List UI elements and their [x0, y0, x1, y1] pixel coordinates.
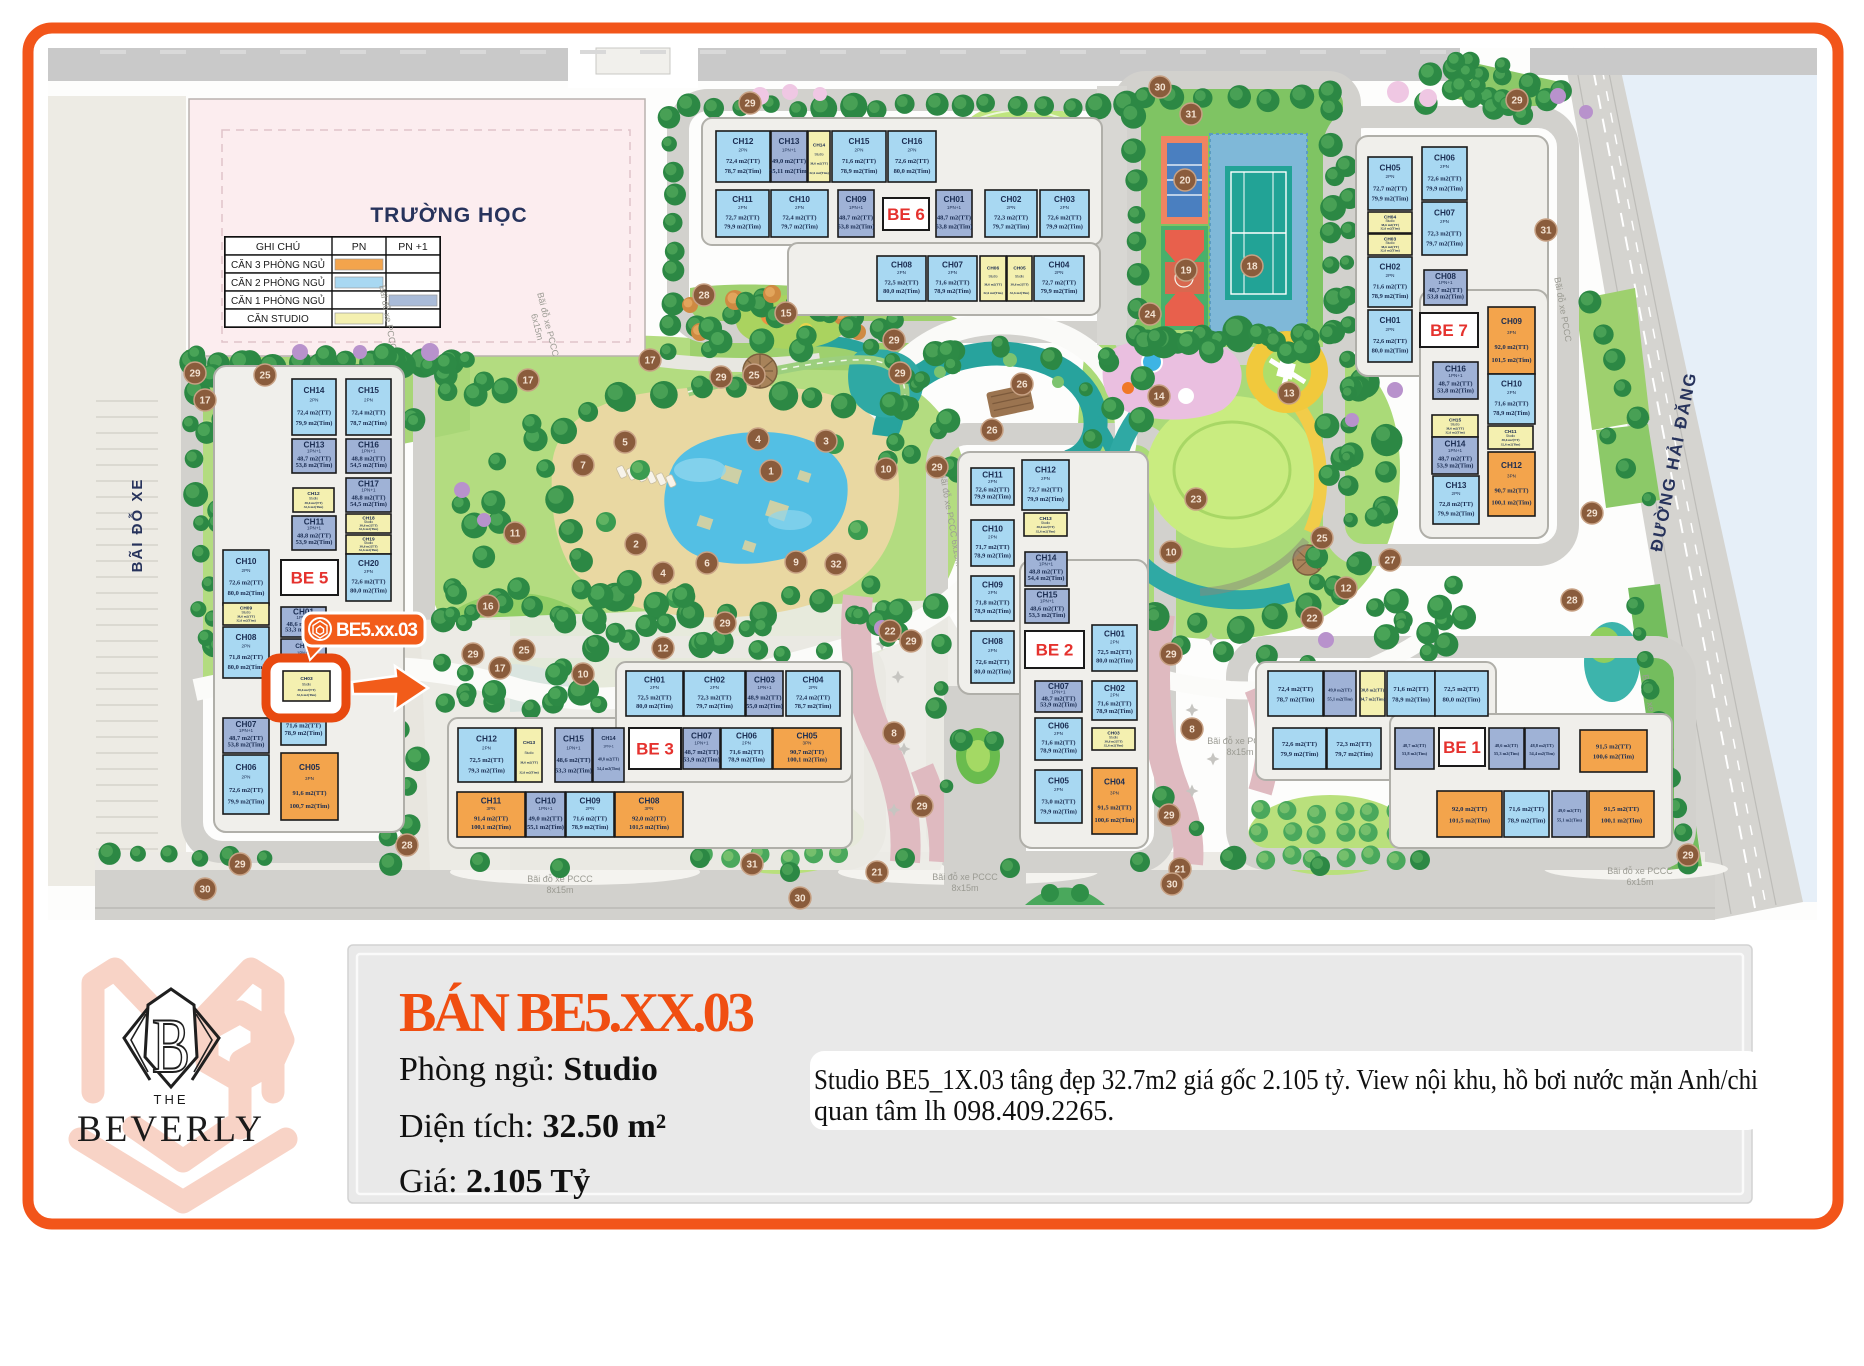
svg-text:GHI CHÚ: GHI CHÚ	[256, 240, 300, 253]
svg-text:1PN+1: 1PN+1	[566, 746, 581, 751]
svg-text:53,9 m2(Tim): 53,9 m2(Tim)	[1040, 701, 1077, 708]
svg-text:79,9 m2(Tim): 79,9 m2(Tim)	[1426, 185, 1463, 192]
svg-text:2PN: 2PN	[1054, 731, 1063, 736]
svg-text:29: 29	[905, 637, 917, 648]
svg-text:CH07: CH07	[691, 731, 712, 740]
svg-text:CH11: CH11	[481, 796, 502, 805]
svg-text:CĂN 3 PHÒNG NGỦ: CĂN 3 PHÒNG NGỦ	[231, 258, 325, 271]
svg-text:55,3 m2(Tim): 55,3 m2(Tim)	[1494, 751, 1520, 756]
svg-text:48,7 m2(TT): 48,7 m2(TT)	[1403, 743, 1427, 748]
svg-text:53,8 m2(Tim): 53,8 m2(Tim)	[1427, 294, 1464, 301]
svg-text:32,6 m2(Tim): 32,6 m2(Tim)	[1380, 249, 1400, 253]
svg-text:1PN+1: 1PN+1	[782, 147, 797, 152]
svg-text:100,1 m2(Tim): 100,1 m2(Tim)	[1492, 499, 1532, 506]
svg-text:48,7 m2(TT): 48,7 m2(TT)	[937, 215, 971, 222]
svg-text:10: 10	[577, 670, 589, 681]
svg-text:3PN: 3PN	[803, 740, 812, 745]
svg-text:78,7 m2(Tim): 78,7 m2(Tim)	[725, 168, 762, 175]
svg-text:48,8 m2(TT): 48,8 m2(TT)	[598, 756, 620, 761]
svg-text:72,6 m2(TT): 72,6 m2(TT)	[895, 158, 929, 165]
svg-text:49,0 m2(TT): 49,0 m2(TT)	[1328, 688, 1352, 693]
svg-text:25: 25	[259, 371, 271, 382]
svg-text:Studio BE5_1X.03 tâng đẹp 32.7: Studio BE5_1X.03 tâng đẹp 32.7m2 giá gốc…	[814, 1065, 1758, 1096]
svg-text:1PN+1: 1PN+1	[307, 526, 322, 531]
svg-text:26: 26	[986, 426, 998, 437]
svg-text:2PN: 2PN	[364, 397, 373, 402]
svg-text:10: 10	[1165, 548, 1177, 559]
svg-text:CH08: CH08	[236, 633, 257, 642]
svg-text:CH12: CH12	[1501, 461, 1522, 470]
svg-text:80,0 m2(Tim): 80,0 m2(Tim)	[228, 590, 265, 597]
svg-text:2PN: 2PN	[482, 746, 491, 751]
svg-text:4: 4	[755, 435, 761, 446]
svg-text:72,5 m2(TT): 72,5 m2(TT)	[469, 757, 503, 764]
svg-text:72,6 m2(TT): 72,6 m2(TT)	[229, 787, 263, 794]
svg-text:2PN: 2PN	[1386, 327, 1395, 332]
svg-text:BE 2: BE 2	[1036, 641, 1074, 660]
svg-text:2PN: 2PN	[738, 205, 747, 210]
svg-text:2PN: 2PN	[586, 806, 595, 811]
svg-text:32,6 m2(Tim): 32,6 m2(Tim)	[359, 548, 379, 552]
svg-text:Studio: Studio	[302, 682, 311, 686]
svg-text:CĂN 1 PHÒNG NGỦ: CĂN 1 PHÒNG NGỦ	[231, 294, 325, 307]
svg-text:72,3 m2(TT): 72,3 m2(TT)	[697, 694, 731, 701]
svg-text:29: 29	[234, 860, 246, 871]
svg-text:49,0 m2(TT): 49,0 m2(TT)	[1558, 808, 1582, 813]
svg-text:79,9 m2(Tim): 79,9 m2(Tim)	[1040, 808, 1077, 815]
svg-text:30: 30	[199, 885, 211, 896]
svg-text:72,6 m2(TT): 72,6 m2(TT)	[351, 579, 385, 586]
svg-text:2PN: 2PN	[1060, 205, 1069, 210]
svg-text:Diện tích: 32.50 m²: Diện tích: 32.50 m²	[399, 1108, 666, 1145]
svg-text:79,7 m2(Tim): 79,7 m2(Tim)	[781, 224, 818, 231]
svg-text:CH08: CH08	[891, 260, 912, 269]
svg-text:55,1 m2(Tim): 55,1 m2(Tim)	[527, 824, 564, 831]
svg-text:48,7 m2(TT): 48,7 m2(TT)	[1438, 380, 1472, 387]
svg-text:32,6 m2(Tim): 32,6 m2(Tim)	[1380, 227, 1400, 231]
svg-text:30,8 m2(TT): 30,8 m2(TT)	[1361, 688, 1385, 693]
svg-text:100,1 m2(Tim): 100,1 m2(Tim)	[1601, 817, 1642, 824]
svg-text:3PN: 3PN	[305, 776, 314, 781]
svg-text:8: 8	[891, 729, 897, 740]
svg-text:16: 16	[482, 602, 494, 613]
svg-text:2PN: 2PN	[1055, 270, 1064, 275]
svg-text:3PN: 3PN	[1507, 330, 1516, 335]
svg-text:17: 17	[522, 376, 534, 387]
svg-text:54,5 m2(Tim): 54,5 m2(Tim)	[350, 501, 387, 508]
svg-text:78,9 m2(Tim): 78,9 m2(Tim)	[572, 824, 609, 831]
svg-text:BÃI ĐỖ XE: BÃI ĐỖ XE	[128, 478, 146, 573]
svg-text:Phòng ngủ: Studio: Phòng ngủ: Studio	[399, 1051, 658, 1088]
svg-text:6: 6	[704, 559, 710, 570]
svg-text:32,6 m2(Tim): 32,6 m2(Tim)	[809, 171, 829, 175]
svg-text:29: 29	[916, 802, 928, 813]
svg-text:78,9 m2(Tim): 78,9 m2(Tim)	[934, 288, 971, 295]
svg-text:29: 29	[1511, 96, 1523, 107]
svg-text:CĂN STUDIO: CĂN STUDIO	[247, 312, 309, 325]
svg-text:72,5 m2(TT): 72,5 m2(TT)	[1097, 649, 1131, 656]
svg-text:CH10: CH10	[982, 525, 1003, 534]
svg-text:CH13: CH13	[523, 740, 536, 746]
svg-text:CH06: CH06	[236, 763, 257, 772]
svg-text:79,7 m2(Tim): 79,7 m2(Tim)	[1335, 751, 1373, 758]
svg-text:CH09: CH09	[982, 580, 1003, 589]
svg-text:78,9 m2(Tim): 78,9 m2(Tim)	[974, 553, 1011, 560]
svg-text:72,5 m2(TT): 72,5 m2(TT)	[1444, 686, 1479, 693]
svg-text:80,0 m2(Tim): 80,0 m2(Tim)	[1096, 658, 1133, 665]
svg-text:79,9 m2(Tim): 79,9 m2(Tim)	[974, 493, 1011, 500]
svg-text:CH07: CH07	[1434, 208, 1455, 217]
svg-text:29: 29	[189, 369, 201, 380]
svg-text:CH14: CH14	[813, 142, 826, 148]
svg-text:79,9 m2(Tim): 79,9 m2(Tim)	[228, 798, 265, 805]
svg-text:1PN+1: 1PN+1	[1448, 373, 1463, 378]
svg-text:101,5 m2(Tim): 101,5 m2(Tim)	[1449, 817, 1490, 824]
svg-text:72,7 m2(TT): 72,7 m2(TT)	[1373, 185, 1407, 192]
svg-text:100,6 m2(Tim): 100,6 m2(Tim)	[1593, 754, 1634, 761]
svg-text:53,8 m2(Tim): 53,8 m2(Tim)	[838, 224, 875, 231]
svg-text:CH06: CH06	[736, 731, 757, 740]
svg-text:20: 20	[1179, 176, 1191, 187]
svg-text:8x15m: 8x15m	[546, 885, 573, 895]
svg-text:2PN: 2PN	[1041, 476, 1050, 481]
svg-text:32,6 m2(Tim): 32,6 m2(Tim)	[1010, 291, 1030, 295]
svg-text:2PN: 2PN	[1007, 205, 1016, 210]
svg-text:53,8 m2(Tim): 53,8 m2(Tim)	[1402, 751, 1428, 756]
svg-text:79,9 m2(Tim): 79,9 m2(Tim)	[1438, 510, 1475, 517]
svg-text:CH01: CH01	[944, 195, 965, 204]
svg-text:BE 5: BE 5	[291, 569, 329, 588]
svg-text:CH16: CH16	[902, 137, 923, 146]
svg-text:29: 29	[715, 373, 727, 384]
svg-text:2PN: 2PN	[742, 740, 751, 745]
svg-text:72,7 m2(TT): 72,7 m2(TT)	[1028, 487, 1062, 494]
svg-text:78,9 m2(Tim): 78,9 m2(Tim)	[728, 757, 765, 764]
svg-text:CH01: CH01	[1380, 316, 1401, 325]
svg-text:CH10: CH10	[236, 557, 257, 566]
svg-text:53,9 m2(Tim): 53,9 m2(Tim)	[296, 539, 333, 546]
svg-text:71,6 m2(TT): 71,6 m2(TT)	[842, 158, 876, 165]
svg-text:12: 12	[657, 644, 669, 655]
svg-text:CH05: CH05	[1048, 776, 1069, 785]
svg-text:72,4 m2(TT): 72,4 m2(TT)	[726, 158, 760, 165]
svg-text:79,9 m2(Tim): 79,9 m2(Tim)	[1372, 195, 1409, 202]
svg-text:54,4 m2(Tim): 54,4 m2(Tim)	[597, 766, 621, 771]
svg-text:2PN: 2PN	[795, 205, 804, 210]
svg-text:78,9 m2(Tim): 78,9 m2(Tim)	[1508, 817, 1546, 824]
svg-text:32,6 m2(Tim): 32,6 m2(Tim)	[359, 527, 379, 531]
svg-text:CH04: CH04	[1104, 778, 1125, 787]
svg-text:31: 31	[1540, 226, 1552, 237]
svg-text:1PN+1: 1PN+1	[603, 744, 614, 748]
svg-text:CH11: CH11	[732, 195, 753, 204]
svg-text:31: 31	[746, 860, 758, 871]
svg-text:CH12: CH12	[476, 735, 497, 744]
svg-text:48,6 m2(TT): 48,6 m2(TT)	[556, 757, 590, 764]
svg-text:55,1 m2(Tim): 55,1 m2(Tim)	[1557, 817, 1583, 822]
svg-text:91,5 m2(TT): 91,5 m2(TT)	[1097, 805, 1131, 812]
svg-text:91,6 m2(TT): 91,6 m2(TT)	[292, 790, 326, 797]
svg-text:BE 3: BE 3	[636, 740, 674, 759]
svg-text:54,4 m2(Tim): 54,4 m2(Tim)	[1028, 575, 1065, 582]
svg-text:CH15: CH15	[563, 735, 584, 744]
svg-text:CH15: CH15	[358, 386, 379, 395]
svg-text:72,6 m2(TT): 72,6 m2(TT)	[1282, 741, 1317, 748]
svg-text:BE5.xx.03: BE5.xx.03	[336, 620, 418, 641]
svg-text:32,6 m2(Tim): 32,6 m2(Tim)	[297, 693, 317, 697]
svg-text:2PN: 2PN	[1452, 491, 1461, 496]
svg-text:79,9 m2(Tim): 79,9 m2(Tim)	[1046, 224, 1083, 231]
svg-text:91,5 m2(TT): 91,5 m2(TT)	[1604, 806, 1639, 813]
svg-text:19: 19	[1180, 266, 1192, 277]
svg-text:PN +1: PN +1	[398, 241, 428, 253]
svg-text:25: 25	[748, 371, 760, 382]
svg-text:29: 29	[1586, 509, 1598, 520]
svg-text:55,1 m2(Tim): 55,1 m2(Tim)	[1327, 697, 1353, 702]
svg-text:72,5 m2(TT): 72,5 m2(TT)	[884, 279, 918, 286]
svg-text:29: 29	[744, 99, 756, 110]
svg-text:28: 28	[698, 291, 710, 302]
svg-text:BE 1: BE 1	[1443, 738, 1481, 757]
svg-text:CH01: CH01	[644, 675, 665, 684]
svg-text:CH03: CH03	[754, 675, 775, 684]
svg-text:CH06: CH06	[1434, 153, 1455, 162]
svg-text:CH03: CH03	[1054, 195, 1075, 204]
svg-text:CH15: CH15	[849, 137, 870, 146]
svg-text:CH13: CH13	[779, 137, 800, 146]
svg-text:CH02: CH02	[1380, 263, 1401, 272]
svg-text:2PN: 2PN	[1440, 219, 1449, 224]
svg-text:54,5 m2(Tim): 54,5 m2(Tim)	[350, 462, 387, 469]
svg-text:BE 6: BE 6	[887, 205, 925, 224]
svg-text:2PN: 2PN	[242, 775, 251, 780]
svg-text:79,7 m2(Tim): 79,7 m2(Tim)	[1426, 240, 1463, 247]
svg-text:80,0 m2(Tim): 80,0 m2(Tim)	[228, 664, 265, 671]
svg-text:29: 29	[894, 369, 906, 380]
svg-text:15: 15	[780, 309, 792, 320]
svg-text:CH10: CH10	[535, 796, 556, 805]
svg-text:Bãi đỗ xe PCCC: Bãi đỗ xe PCCC	[932, 872, 998, 882]
svg-text:71,6 m2(TT): 71,6 m2(TT)	[1509, 806, 1544, 813]
svg-text:1PN+1: 1PN+1	[1040, 599, 1055, 604]
svg-text:2PN: 2PN	[1386, 174, 1395, 179]
svg-text:2PN: 2PN	[988, 534, 997, 539]
svg-text:CH09: CH09	[1501, 317, 1522, 326]
svg-text:22: 22	[1306, 614, 1318, 625]
svg-text:72,4 m2(TT): 72,4 m2(TT)	[1278, 686, 1313, 693]
svg-text:32,6 m2(Tim): 32,6 m2(Tim)	[236, 618, 256, 622]
svg-text:2PN: 2PN	[1054, 787, 1063, 792]
svg-text:80,0 m2(Tim): 80,0 m2(Tim)	[974, 669, 1011, 676]
svg-text:2PN: 2PN	[710, 685, 719, 690]
svg-text:CH02: CH02	[1104, 684, 1125, 693]
svg-text:7: 7	[580, 461, 586, 472]
svg-text:72,4 m2(TT): 72,4 m2(TT)	[351, 409, 385, 416]
svg-text:2PN: 2PN	[897, 270, 906, 275]
svg-text:100,1 m2(Tim): 100,1 m2(Tim)	[787, 757, 827, 764]
svg-text:29: 29	[467, 650, 479, 661]
svg-text:CH08: CH08	[639, 796, 660, 805]
svg-text:8: 8	[1189, 725, 1195, 736]
svg-text:80,0 m2(Tim): 80,0 m2(Tim)	[894, 168, 931, 175]
svg-text:91,5 m2(TT): 91,5 m2(TT)	[1596, 743, 1631, 750]
svg-text:100,7 m2(Tim): 100,7 m2(Tim)	[290, 803, 330, 810]
svg-text:101,5 m2(Tim): 101,5 m2(Tim)	[1492, 357, 1532, 364]
svg-text:100,1 m2(Tim): 100,1 m2(Tim)	[471, 824, 511, 831]
svg-text:71,6 m2(TT): 71,6 m2(TT)	[1393, 686, 1428, 693]
svg-text:30: 30	[794, 894, 806, 905]
svg-text:32,6 m2(Tim): 32,6 m2(Tim)	[1445, 430, 1465, 434]
svg-text:2PN: 2PN	[1110, 693, 1119, 698]
svg-text:92,0 m2(TT): 92,0 m2(TT)	[632, 815, 666, 822]
svg-text:PN: PN	[352, 241, 367, 253]
svg-text:80,0 m2(Tim): 80,0 m2(Tim)	[350, 588, 387, 595]
svg-text:3: 3	[823, 437, 829, 448]
svg-text:48,7 m2(TT): 48,7 m2(TT)	[839, 215, 873, 222]
svg-text:1PN+1: 1PN+1	[1051, 689, 1066, 694]
svg-text:25: 25	[1316, 534, 1328, 545]
svg-text:53,3 m2(Tim): 53,3 m2(Tim)	[555, 767, 592, 774]
svg-text:49,0 m2(TT): 49,0 m2(TT)	[772, 158, 806, 165]
svg-text:13: 13	[1283, 389, 1295, 400]
svg-text:32,6 m2(Tim): 32,6 m2(Tim)	[1104, 743, 1124, 747]
svg-text:Studio: Studio	[524, 751, 533, 755]
svg-text:29: 29	[1682, 851, 1694, 862]
svg-text:71,6 m2(TT): 71,6 m2(TT)	[935, 279, 969, 286]
svg-text:53,8 m2(Tim): 53,8 m2(Tim)	[1437, 387, 1474, 394]
svg-text:53,9 m2(Tim): 53,9 m2(Tim)	[683, 757, 720, 764]
svg-text:78,9 m2(Tim): 78,9 m2(Tim)	[1392, 697, 1430, 704]
svg-text:32,6 m2(Tim): 32,6 m2(Tim)	[304, 505, 324, 509]
svg-text:28: 28	[1566, 596, 1578, 607]
svg-text:CH06: CH06	[1048, 722, 1069, 731]
svg-text:80,0 m2(Tim): 80,0 m2(Tim)	[1372, 348, 1409, 355]
svg-text:72,4 m2(TT): 72,4 m2(TT)	[297, 409, 331, 416]
svg-text:38,6 m2(TT): 38,6 m2(TT)	[520, 761, 538, 765]
svg-text:27: 27	[1384, 556, 1396, 567]
svg-text:72,6 m2(TT): 72,6 m2(TT)	[975, 486, 1009, 493]
svg-text:CH14: CH14	[601, 736, 616, 742]
svg-text:24: 24	[1144, 310, 1156, 321]
svg-text:1PN+1: 1PN+1	[757, 685, 772, 690]
svg-text:53,8 m2(Tim): 53,8 m2(Tim)	[228, 742, 265, 749]
svg-text:CH08: CH08	[982, 637, 1003, 646]
svg-text:29: 29	[1165, 650, 1177, 661]
svg-text:2PN: 2PN	[988, 648, 997, 653]
svg-text:2PN: 2PN	[855, 147, 864, 152]
svg-text:55,11 m2(Tim): 55,11 m2(Tim)	[769, 168, 809, 175]
svg-text:80,0 m2(Tim): 80,0 m2(Tim)	[883, 288, 920, 295]
svg-text:CH10: CH10	[1501, 380, 1522, 389]
svg-text:53,3 m2(Tim): 53,3 m2(Tim)	[1029, 612, 1066, 619]
svg-text:92,0 m2(TT): 92,0 m2(TT)	[1494, 344, 1528, 351]
svg-text:1PN+1: 1PN+1	[307, 449, 322, 454]
svg-text:quan tâm lh 098.409.2265.: quan tâm lh 098.409.2265.	[814, 1096, 1114, 1127]
svg-text:72,3 m2(TT): 72,3 m2(TT)	[994, 215, 1028, 222]
svg-text:30: 30	[1166, 880, 1178, 891]
svg-text:14: 14	[1153, 392, 1165, 403]
svg-text:1PN+1: 1PN+1	[538, 806, 553, 811]
svg-text:80,0 m2(Tim): 80,0 m2(Tim)	[636, 703, 673, 710]
svg-text:1PN+1: 1PN+1	[947, 205, 962, 210]
svg-text:18: 18	[1246, 262, 1258, 273]
svg-text:2PN: 2PN	[988, 590, 997, 595]
svg-text:34,7 m2(Tim): 34,7 m2(Tim)	[1360, 697, 1386, 702]
svg-text:79,9 m2(Tim): 79,9 m2(Tim)	[296, 420, 333, 427]
svg-text:72,7 m2(TT): 72,7 m2(TT)	[725, 215, 759, 222]
svg-text:CH14: CH14	[304, 386, 325, 395]
svg-text:CH09: CH09	[580, 796, 601, 805]
svg-text:53,8 m2(Tim): 53,8 m2(Tim)	[296, 462, 333, 469]
svg-text:72,6 m2(TT): 72,6 m2(TT)	[1427, 175, 1461, 182]
svg-text:78,9 m2(Tim): 78,9 m2(Tim)	[285, 730, 323, 737]
svg-text:29: 29	[931, 463, 943, 474]
svg-text:2PN: 2PN	[1440, 164, 1449, 169]
svg-text:71,8 m2(TT): 71,8 m2(TT)	[229, 654, 263, 661]
svg-text:72,6 m2(TT): 72,6 m2(TT)	[1047, 215, 1081, 222]
svg-text:71,8 m2(TT): 71,8 m2(TT)	[975, 599, 1009, 606]
svg-text:32,6 m2(Tim): 32,6 m2(Tim)	[983, 291, 1003, 295]
svg-text:2PN: 2PN	[242, 643, 251, 648]
svg-text:17: 17	[644, 356, 656, 367]
svg-text:72,4 m2(TT): 72,4 m2(TT)	[796, 694, 830, 701]
svg-text:78,7 m2(Tim): 78,7 m2(Tim)	[795, 703, 832, 710]
svg-text:79,7 m2(Tim): 79,7 m2(Tim)	[993, 224, 1030, 231]
svg-text:2PN: 2PN	[1386, 273, 1395, 278]
svg-text:CH13: CH13	[1446, 481, 1467, 490]
svg-text:CH07: CH07	[942, 260, 963, 269]
svg-text:11: 11	[510, 529, 521, 540]
svg-text:71,6 m2(TT): 71,6 m2(TT)	[1494, 401, 1528, 408]
svg-text:28: 28	[401, 841, 413, 852]
svg-text:71,6 m2(TT): 71,6 m2(TT)	[286, 723, 321, 730]
svg-text:17: 17	[494, 664, 506, 675]
svg-text:THE: THE	[154, 1092, 189, 1107]
svg-text:CH05: CH05	[1013, 266, 1026, 272]
svg-text:CH01: CH01	[1104, 630, 1125, 639]
svg-text:TRƯỜNG HỌC: TRƯỜNG HỌC	[370, 203, 527, 227]
svg-text:72,6 m2(TT): 72,6 m2(TT)	[229, 580, 263, 587]
svg-text:31: 31	[1185, 110, 1197, 121]
svg-text:1: 1	[768, 467, 774, 478]
svg-text:53,8 m2(Tim): 53,8 m2(Tim)	[936, 224, 973, 231]
svg-text:38,6 m2(TT): 38,6 m2(TT)	[984, 283, 1002, 287]
svg-text:72,4 m2(TT): 72,4 m2(TT)	[782, 215, 816, 222]
svg-text:CH04: CH04	[803, 675, 824, 684]
svg-text:Studio: Studio	[988, 275, 997, 279]
svg-text:71,6 m2(TT): 71,6 m2(TT)	[1373, 284, 1407, 291]
svg-text:1PN+1: 1PN+1	[239, 728, 254, 733]
svg-text:78,9 m2(Tim): 78,9 m2(Tim)	[841, 168, 878, 175]
svg-text:29: 29	[719, 619, 731, 630]
svg-text:5: 5	[622, 438, 628, 449]
svg-text:100,6 m2(Tim): 100,6 m2(Tim)	[1095, 817, 1135, 824]
svg-text:21: 21	[871, 868, 883, 879]
svg-text:2PN: 2PN	[310, 397, 319, 402]
svg-text:1PN+1: 1PN+1	[1448, 448, 1463, 453]
svg-text:2PN: 2PN	[650, 685, 659, 690]
svg-text:71,6 m2(TT): 71,6 m2(TT)	[573, 815, 607, 822]
svg-text:32,6 m2(Tim): 32,6 m2(Tim)	[1501, 442, 1521, 446]
svg-text:48,7 m2(TT): 48,7 m2(TT)	[684, 749, 718, 756]
svg-text:1PN+1: 1PN+1	[694, 740, 709, 745]
svg-text:79,9 m2(Tim): 79,9 m2(Tim)	[1041, 288, 1078, 295]
svg-text:78,9 m2(Tim): 78,9 m2(Tim)	[1493, 410, 1530, 417]
svg-text:CH12: CH12	[1035, 466, 1056, 475]
svg-text:CH02: CH02	[704, 675, 725, 684]
svg-text:32: 32	[830, 560, 842, 571]
svg-text:71,6 m2(TT): 71,6 m2(TT)	[729, 749, 763, 756]
